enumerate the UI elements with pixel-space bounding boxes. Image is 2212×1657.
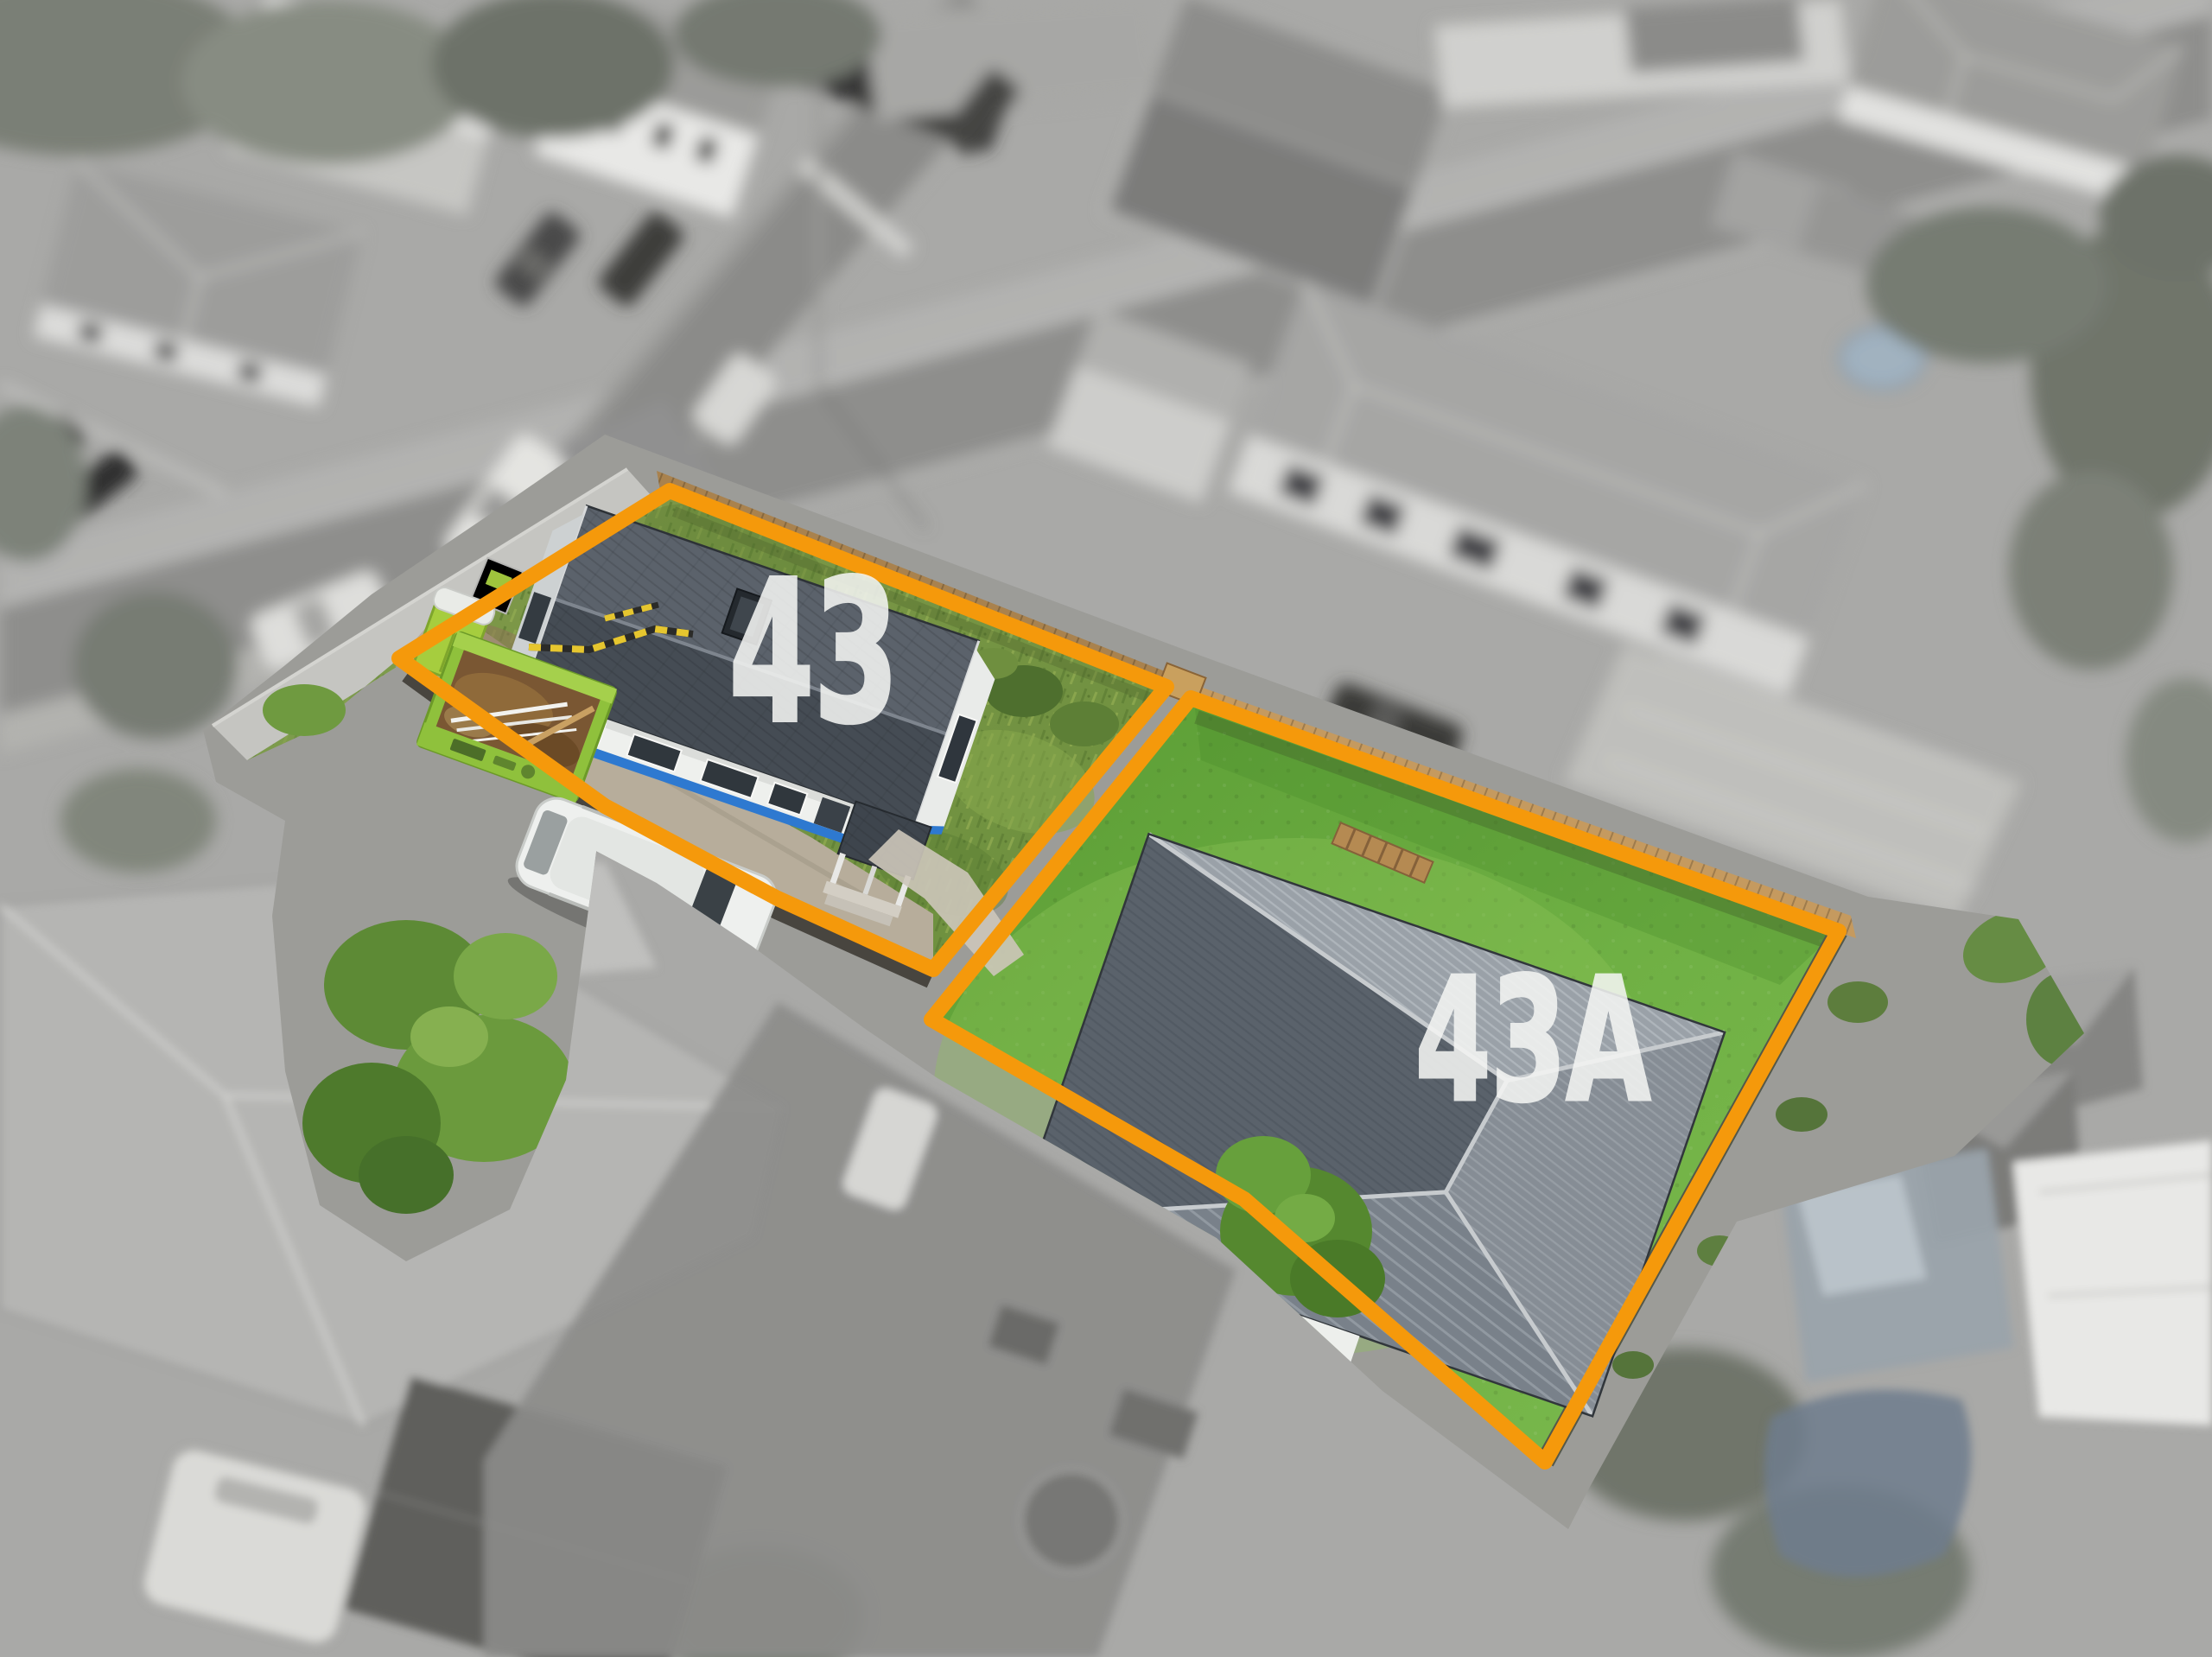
fg-blue-tarp: [1764, 1390, 1971, 1577]
aerial-photo: 43 43A: [0, 0, 2212, 1657]
bg-power-pole: [816, 48, 822, 393]
bg-roof-topright: [1624, 0, 1804, 73]
lot-43-label: 43: [729, 540, 899, 766]
fg-marquee: [2013, 1140, 2212, 1425]
lot-43a-label: 43A: [1415, 943, 1650, 1140]
